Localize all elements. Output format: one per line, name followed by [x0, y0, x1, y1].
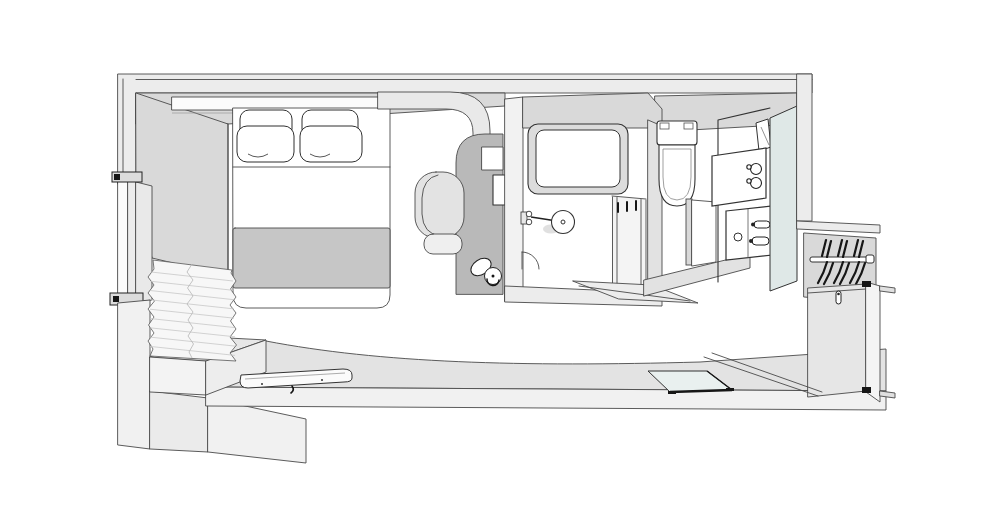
door-frame [866, 282, 880, 402]
door-swing-arc [522, 252, 539, 269]
amenity-shelf [712, 148, 766, 206]
towel-rack [612, 196, 646, 291]
hinge [862, 387, 871, 393]
rain-shower [521, 211, 575, 234]
wall-stub [880, 286, 895, 293]
bathroom-west-wall [505, 97, 523, 301]
curtain [148, 260, 237, 361]
right-wall [797, 74, 880, 233]
desk-slot [482, 147, 503, 170]
window [110, 172, 152, 305]
toilet-room-door [686, 199, 716, 266]
bathroom-top-deck [523, 93, 662, 128]
washbasin [726, 206, 772, 260]
vanity [712, 108, 772, 282]
rod-end-cap [866, 255, 874, 263]
mirror-panel [770, 106, 797, 291]
curtain-bracket-top [112, 172, 142, 182]
bathtub [528, 124, 628, 194]
chair [415, 172, 464, 254]
hinge [862, 281, 871, 287]
wall-light [756, 119, 771, 151]
toilet [657, 121, 697, 206]
floor-plan-svg [0, 0, 1000, 525]
floor-plan-image [0, 0, 1000, 525]
door-handle [836, 291, 841, 304]
bed-runner [233, 228, 390, 288]
